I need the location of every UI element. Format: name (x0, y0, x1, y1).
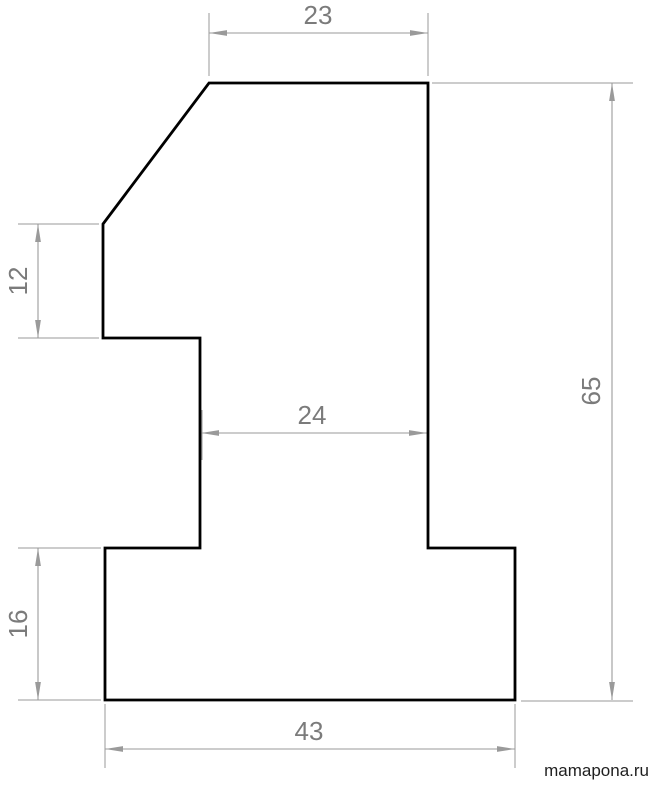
dimension-base-height: 16 (3, 548, 101, 700)
drawing-canvas: 24 23 12 16 43 (0, 0, 651, 787)
dimension-stem-width: 24 (201, 393, 428, 460)
dimension-top-width: 23 (209, 0, 428, 76)
dimension-label-stem-width: 24 (298, 400, 327, 430)
dimension-upper-left-height: 12 (3, 224, 99, 338)
digit-1-outline (103, 83, 515, 700)
dimension-label-base-height: 16 (3, 610, 33, 639)
dimension-label-base-width: 43 (295, 716, 324, 746)
dimension-label-upper-left-height: 12 (3, 267, 33, 296)
technical-drawing: 24 23 12 16 43 (0, 0, 651, 787)
watermark: mamapona.ru (544, 761, 649, 780)
dimension-label-top-width: 23 (304, 0, 333, 30)
dimension-label-overall-height: 65 (576, 377, 606, 406)
dimension-overall-height: 65 (432, 83, 633, 701)
dimension-base-width: 43 (105, 704, 515, 768)
